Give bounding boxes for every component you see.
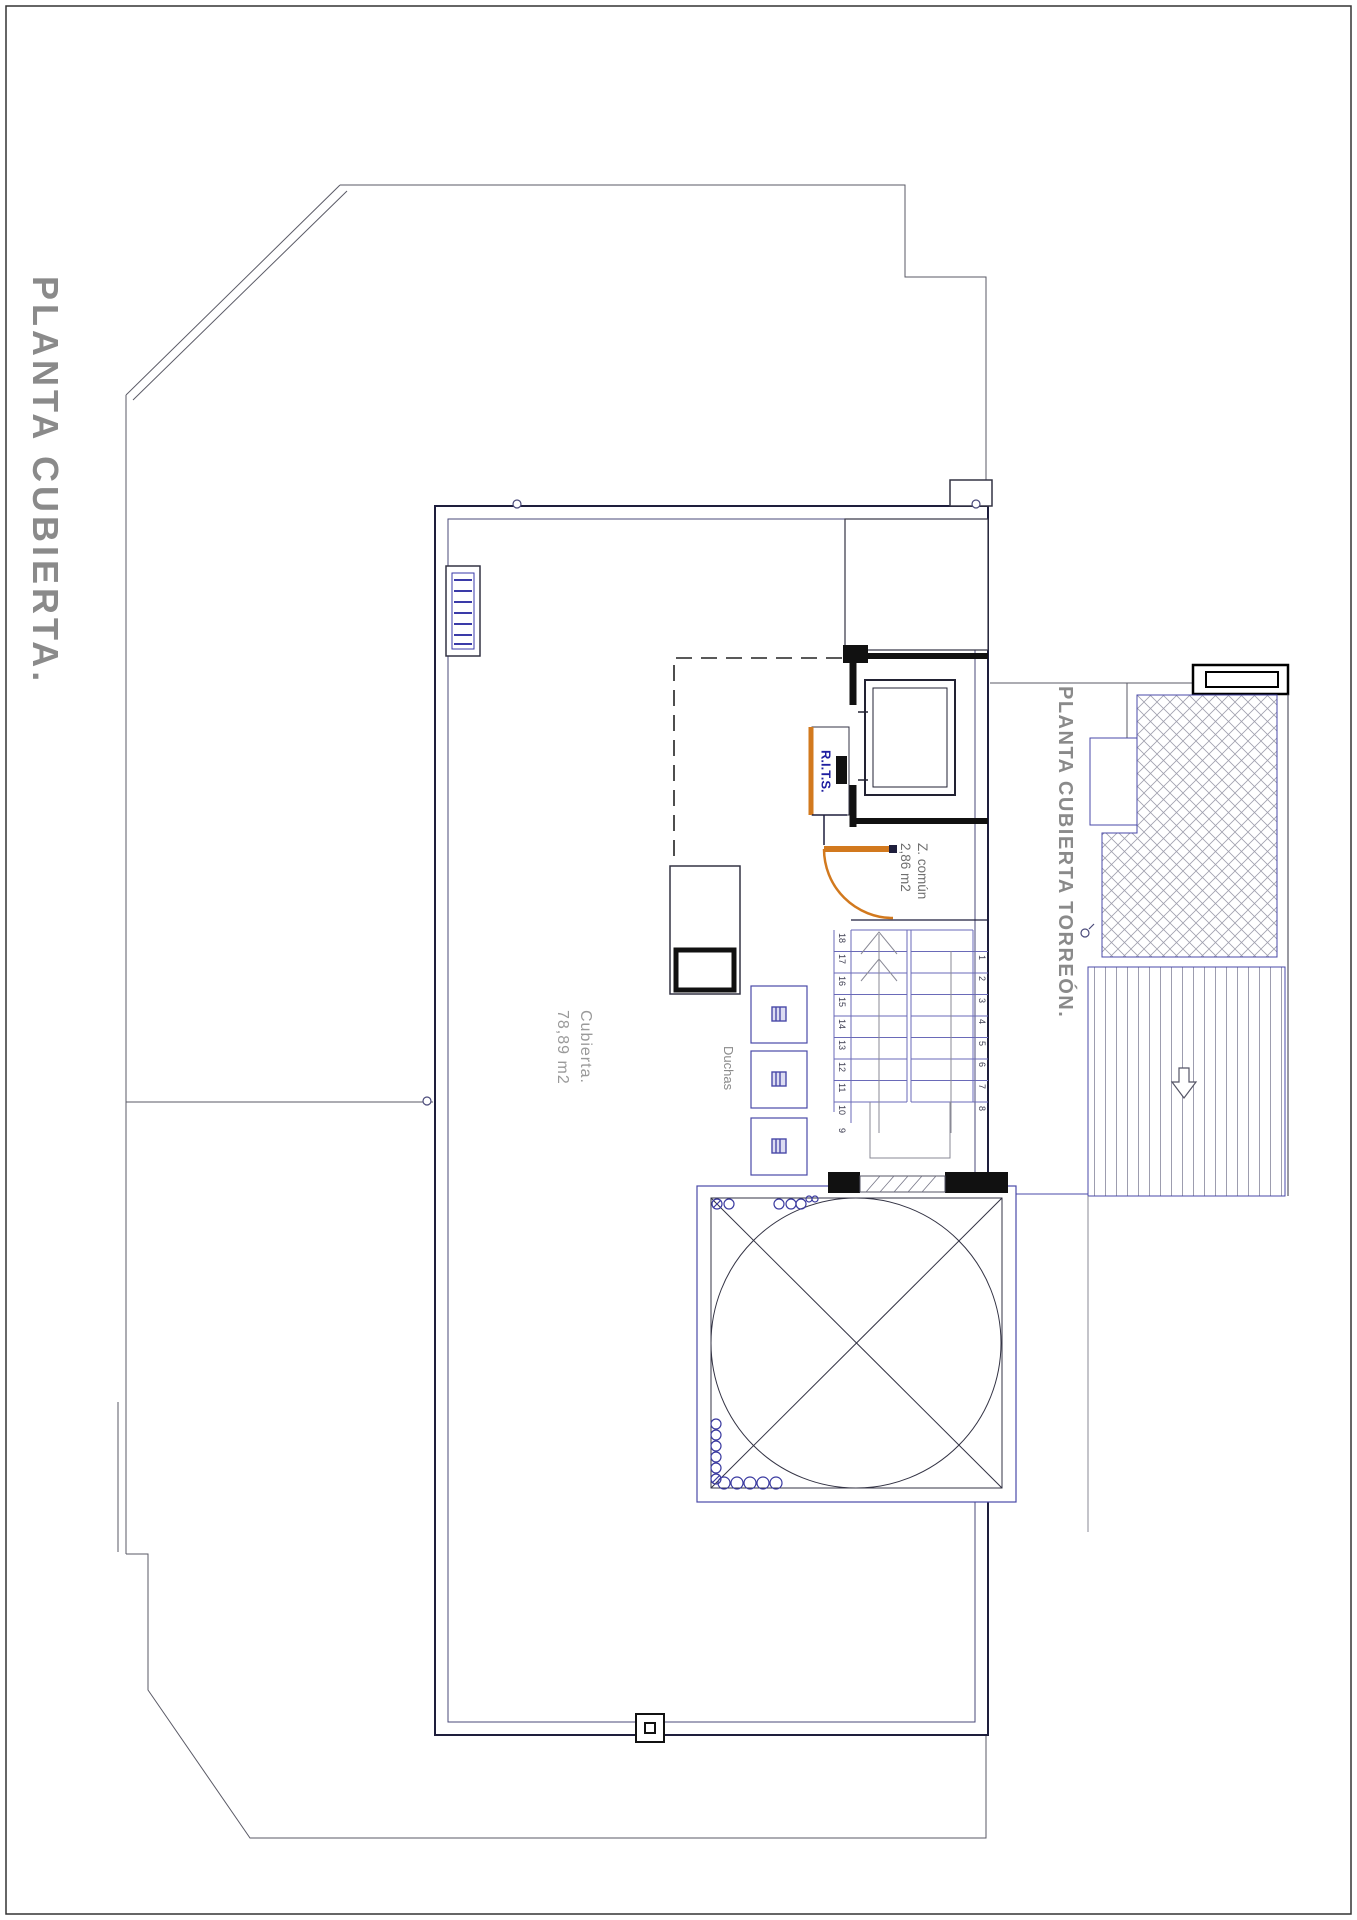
water-tank xyxy=(697,1186,1016,1502)
stair-number: 9 xyxy=(837,1128,847,1133)
stair-number: 10 xyxy=(837,1105,847,1115)
stair-number: 17 xyxy=(837,954,847,964)
roof-vent-box xyxy=(950,480,992,506)
stair-number: 5 xyxy=(977,1041,987,1046)
elevator-car xyxy=(865,680,955,795)
marker-icon xyxy=(1081,929,1089,937)
shower-drain-icon xyxy=(772,1007,786,1021)
stair-number: 18 xyxy=(837,933,847,943)
stair-number: 11 xyxy=(837,1083,847,1092)
marker-icon xyxy=(423,1097,431,1105)
torreon-notch xyxy=(1090,738,1137,825)
elevator-bulkhead xyxy=(845,519,988,650)
torreon-title: PLANTA CUBIERTA TORREÓN. xyxy=(1053,686,1076,1018)
parapet-drain-icon xyxy=(636,1714,664,1742)
cubierta-label: Cubierta. 78,89 m2 xyxy=(551,1010,597,1085)
stair-number: 14 xyxy=(837,1019,847,1029)
rits-label: R.I.T.S. xyxy=(814,731,838,811)
stair-number: 3 xyxy=(977,998,987,1003)
torreon-panel xyxy=(990,665,1288,1532)
shower-drain-icon xyxy=(772,1072,786,1086)
machine-room-box xyxy=(670,866,740,994)
plan-title: PLANTA CUBIERTA. xyxy=(24,276,66,685)
stair-number: 12 xyxy=(837,1062,847,1072)
stair-number: 4 xyxy=(977,1019,987,1024)
stair-number: 15 xyxy=(837,997,847,1007)
stair-number: 7 xyxy=(977,1084,987,1089)
zona-comun-label: Z. común 2,86 m2 xyxy=(897,843,931,899)
floor-plan-page: PLANTA CUBIERTA. PLANTA CUBIERTA TORREÓN… xyxy=(0,0,1357,1920)
torreon-vent xyxy=(1193,665,1288,694)
marker-icon xyxy=(513,500,521,508)
shaft-pilaster xyxy=(843,645,868,663)
stair-number: 6 xyxy=(977,1062,987,1067)
stair-number: 8 xyxy=(977,1106,987,1111)
marker-icon xyxy=(972,500,980,508)
plan-drawing xyxy=(0,0,1357,1920)
stair-number: 16 xyxy=(837,976,847,986)
stair-number: 13 xyxy=(837,1040,847,1050)
duchas-label: Duchas xyxy=(721,1046,736,1090)
roof-ladder-icon xyxy=(446,566,480,656)
stair-number: 2 xyxy=(977,976,987,981)
shower-drain-icon xyxy=(772,1139,786,1153)
paving-hatch-area xyxy=(1102,695,1277,957)
stair-number: 1 xyxy=(977,955,987,960)
